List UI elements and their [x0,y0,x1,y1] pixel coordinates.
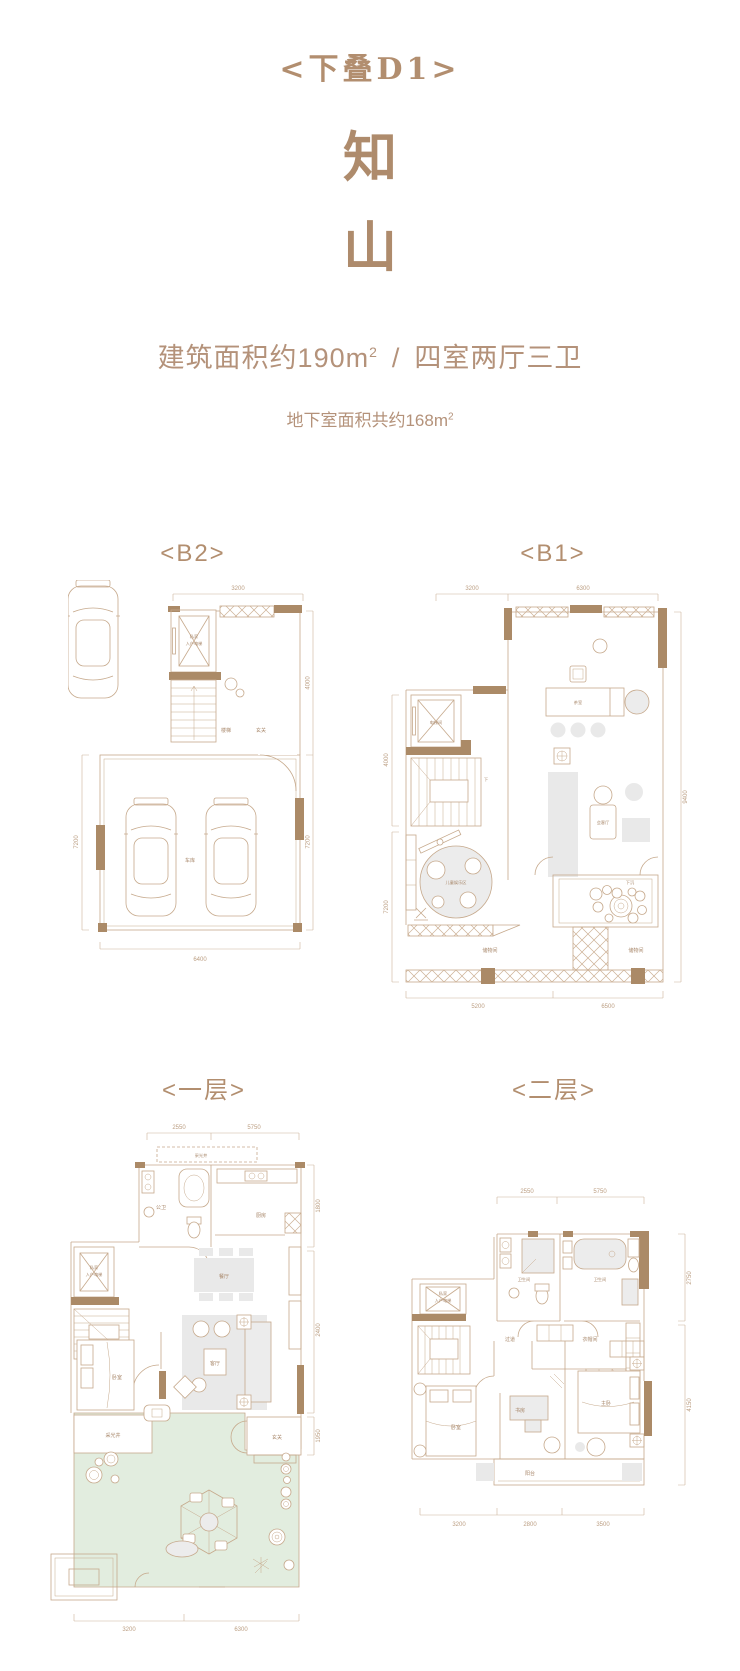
b2-dim-right-top-value: 4000 [306,676,312,690]
plan-first-floor: <一层> 2550 5750 采光井 公卫 厨房 [46,1070,362,1637]
b1-floorplan: 3200 6300 茶室 [378,580,728,1010]
f1-kitchen-label: 厨房 [256,1212,266,1219]
b2-dim-top-value: 3200 [231,586,245,592]
project-name: 知 山 [0,112,740,292]
f2-master-label: 主卧 [600,1400,610,1407]
b2-stairs-label: 楼梯 [221,727,231,734]
f1-foyer-label: 玄关 [272,1434,282,1441]
b2-dim-right-bottom-value: 7200 [306,835,312,849]
b1-sunken-yard-label: 下沉 [626,879,635,886]
f2-dim-top: 2550 5750 [497,1189,644,1204]
plan-b2: <B2> 3200 私家 入户电梯 楼梯 玄关 [62,540,324,975]
area-rooms-text: 四室两厅三卫 [414,343,582,373]
f1-living: 客厅 [174,1315,271,1410]
f1-dim-bottom-right: 6300 [234,1627,248,1633]
f2-bedroom-label: 卧室 [450,1424,460,1431]
b1-annex: 电梯间 下 儿童娱乐区 [406,686,520,936]
b1-storage-right-label: 储物间 [628,947,643,954]
b1-lounge-label: 会客厅 [597,819,610,826]
f1-bedroom: 卧室 [77,1340,134,1410]
plan-b1: <B1> 3200 6300 茶室 [376,540,730,1010]
f1-light-well-top-label: 采光井 [195,1152,208,1159]
b1-dim-top-left: 3200 [465,586,479,592]
b1-dim-top-right: 6300 [576,586,590,592]
f1-elevator-label-2: 入户电梯 [86,1271,103,1278]
b2-foyer-label: 玄关 [256,727,266,734]
f2-dim-bottom-left: 3200 [452,1522,466,1528]
f2-cloakroom-label: 衣帽间 [582,1336,597,1343]
f1-elevator-label-1: 私家 [90,1264,99,1271]
page-title: <下叠D1> [0,44,740,88]
f2-balcony-label: 阳台 [524,1470,534,1477]
b2-dim-bottom-value: 6400 [193,957,207,963]
b1-dim-top: 3200 6300 [436,586,658,601]
area-summary: 建筑面积约190m2/四室两厅三卫 [0,336,740,375]
b1-main-hall: 茶室 会客厅 [504,605,667,880]
f2-elevator-label-2: 入户电梯 [434,1297,451,1304]
plan-f1-title: <一层> [46,1070,362,1105]
f1-dim-right-top: 1800 [316,1199,322,1213]
f1-bedroom-label: 卧室 [112,1374,122,1381]
f2-study: 书房 [500,1341,565,1459]
f2-bath-right-label: 卫生间 [593,1276,606,1283]
car-icon [68,580,120,698]
f2-balcony: 阳台 [412,1459,644,1485]
plan-f2-title: <二层> [380,1070,728,1105]
f2-dim-bottom-mid: 2800 [523,1522,537,1528]
f1-dim-top-right: 5750 [247,1125,261,1131]
f2-baths: 卫生间 卫生间 [497,1231,649,1337]
f1-light-well-bottom-label: 采光井 [105,1432,120,1439]
b2-elevator-label-2: 入户电梯 [186,640,203,647]
b2-garage-label: 车库 [185,857,195,864]
basement-main-text: 地下室面积共约168m [286,411,448,430]
f2-dims: 3200 2800 3500 2750 4150 [420,1234,693,1528]
area-main-text: 建筑面积约190m [158,343,370,373]
f1-dim-top: 2550 5750 [147,1125,299,1140]
f2-bedroom: 卧室 [414,1383,476,1457]
b1-dim-right: 9400 [683,790,689,804]
b2-garage: 车库 [68,580,304,932]
project-name-char-1: 知 [0,112,740,202]
project-name-char-2: 山 [0,202,740,292]
f1-floorplan: 2550 5750 采光井 公卫 厨房 [49,1117,359,1637]
b1-storage-left-label: 储物间 [482,947,497,954]
basement-sup: 2 [448,411,454,422]
b1-dim-bottom-left: 5200 [471,1004,485,1010]
b2-entry: 私家 入户电梯 楼梯 玄关 [168,605,302,755]
b2-dim-top: 3200 [173,586,303,601]
f1-dim-bottom-left: 3200 [122,1627,136,1633]
f2-bath-left-label: 卫生间 [517,1276,530,1283]
basement-summary: 地下室面积共约168m2 [0,406,740,431]
f1-guest-bath-label: 公卫 [156,1205,166,1211]
f2-hallway-label: 过道 [504,1336,514,1343]
f2-dim-top-right: 5750 [593,1189,607,1195]
f2-dim-bottom-right: 3500 [596,1522,610,1528]
b2-dim-left-value: 7200 [74,835,80,849]
b1-dim-left-top: 4000 [384,753,390,767]
area-sup: 2 [369,344,378,360]
plan-b1-title: <B1> [376,540,730,568]
f2-floorplan: 2550 5750 卫生间 卫生间 [382,1181,727,1541]
b1-dim-left-bottom: 7200 [384,900,390,914]
car-icon [124,798,178,916]
b1-kids-area-label: 儿童娱乐区 [446,879,467,886]
f2-elevator-label-1: 私家 [438,1290,447,1297]
area-divider: / [378,343,415,373]
f1-dining-label: 餐厅 [219,1273,229,1280]
b1-elevator-label: 电梯间 [430,719,443,726]
f1-dim-right-mid: 2400 [316,1323,322,1337]
f2-study-label: 书房 [514,1407,524,1414]
b2-elevator-label-1: 私家 [190,633,199,640]
b2-floorplan: 3200 私家 入户电梯 楼梯 玄关 [68,580,318,975]
f1-living-label: 客厅 [210,1360,220,1367]
plan-b2-title: <B2> [62,540,324,568]
car-icon [204,798,258,916]
f2-dim-top-left: 2550 [520,1189,534,1195]
plan-second-floor: <二层> 2550 5750 卫生间 [380,1070,728,1541]
f2-master: 主卧 [575,1289,652,1459]
f1-dining: 餐厅 [194,1248,254,1301]
b1-stairs-down-label: 下 [484,777,488,783]
b1-tea-room-label: 茶室 [574,699,582,705]
b1-dim-bottom-right: 6500 [601,1004,615,1010]
f1-dim-right-bottom: 1950 [316,1429,322,1443]
f1-dim-top-left: 2550 [172,1125,186,1131]
f2-dim-right-top: 2750 [687,1271,693,1285]
f2-dim-right-bottom: 4150 [687,1398,693,1412]
